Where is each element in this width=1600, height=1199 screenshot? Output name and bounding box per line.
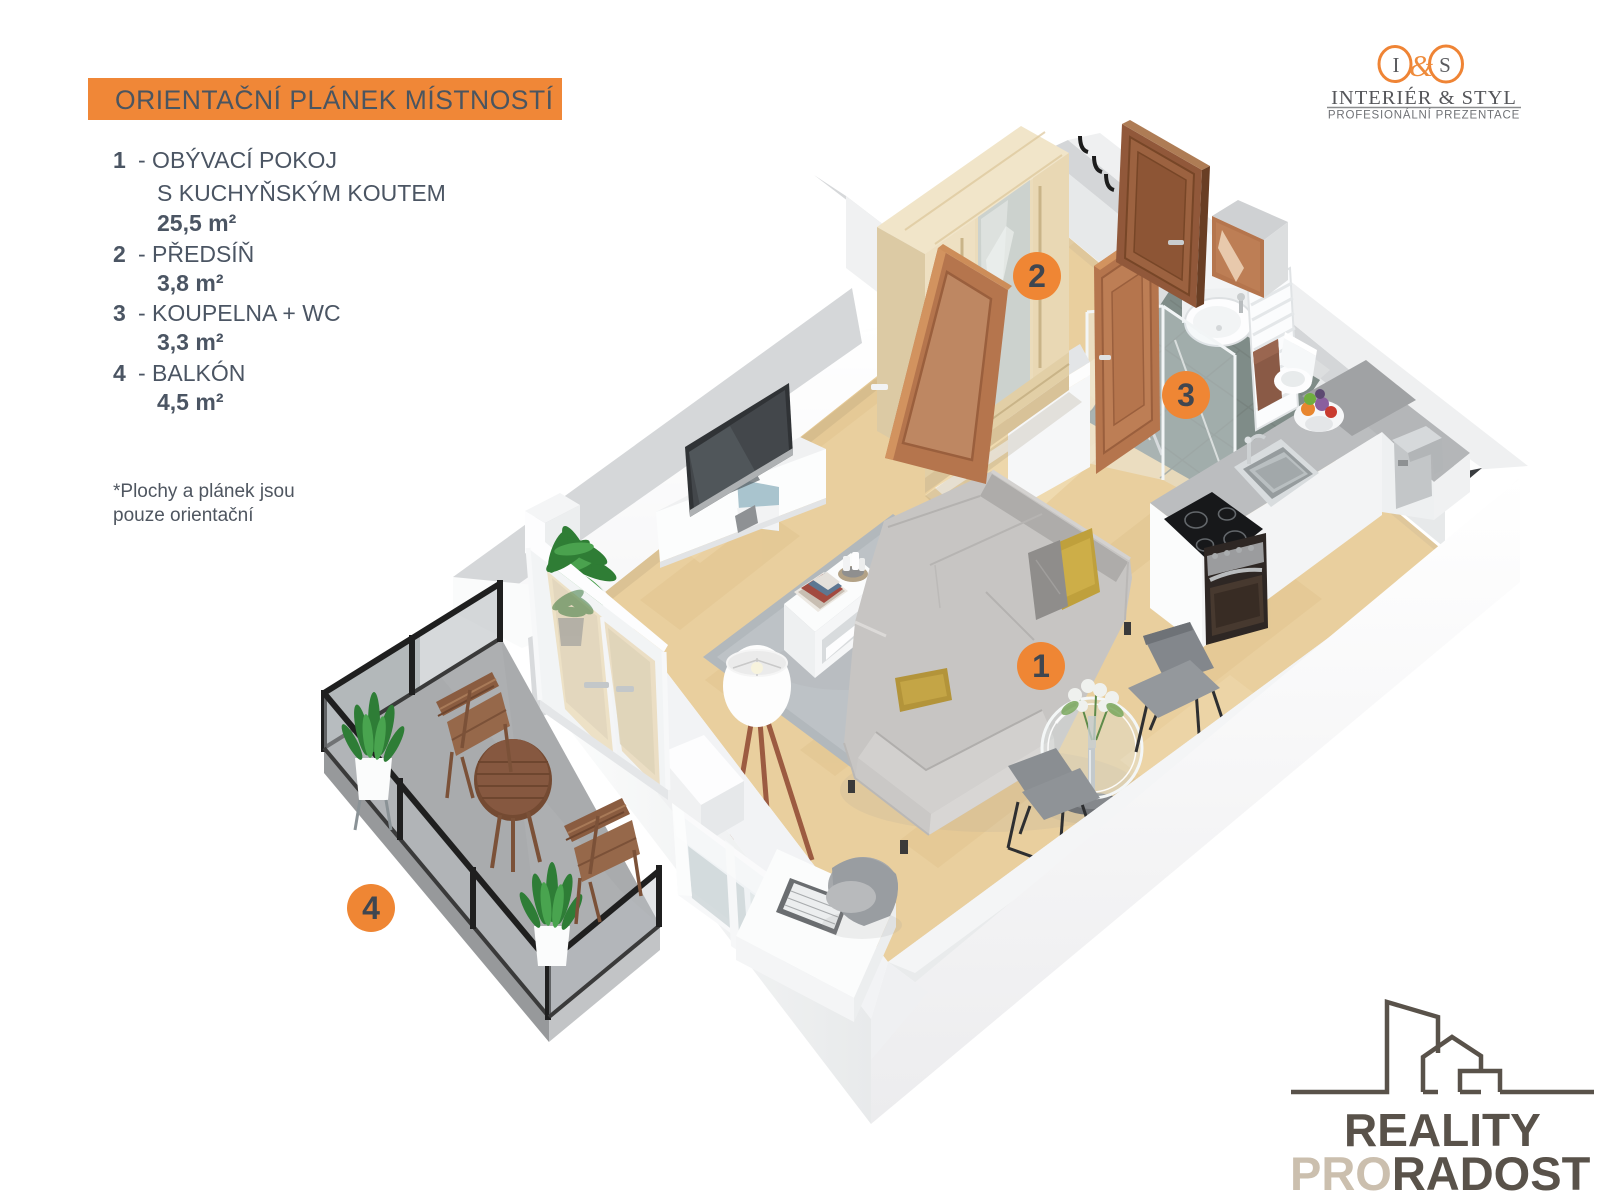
svg-text:I: I xyxy=(1393,53,1400,77)
svg-text:3: 3 xyxy=(113,300,126,326)
svg-text:pouze orientační: pouze orientační xyxy=(113,505,254,526)
svg-text:&: & xyxy=(1409,48,1433,83)
svg-text:3: 3 xyxy=(1177,377,1195,413)
svg-text:2: 2 xyxy=(1028,258,1046,294)
svg-text:3,3 m²: 3,3 m² xyxy=(157,329,224,355)
svg-text:S KUCHYŇSKÝM KOUTEM: S KUCHYŇSKÝM KOUTEM xyxy=(157,180,446,206)
svg-text:1: 1 xyxy=(113,147,126,173)
svg-text:- BALKÓN: - BALKÓN xyxy=(138,360,245,386)
svg-text:PRORADOST: PRORADOST xyxy=(1290,1147,1591,1199)
svg-text:S: S xyxy=(1439,53,1451,77)
svg-text:25,5 m²: 25,5 m² xyxy=(157,210,237,236)
svg-text:- OBÝVACÍ POKOJ: - OBÝVACÍ POKOJ xyxy=(138,147,337,173)
svg-text:2: 2 xyxy=(113,241,126,267)
svg-text:- KOUPELNA + WC: - KOUPELNA + WC xyxy=(138,300,341,326)
svg-text:4: 4 xyxy=(113,360,126,386)
svg-text:1: 1 xyxy=(1032,648,1050,684)
svg-text:3,8 m²: 3,8 m² xyxy=(157,270,224,296)
svg-text:*Plochy a plánek jsou: *Plochy a plánek jsou xyxy=(113,481,295,502)
svg-text:ORIENTAČNÍ PLÁNEK MÍSTNOSTÍ: ORIENTAČNÍ PLÁNEK MÍSTNOSTÍ xyxy=(115,85,554,115)
svg-text:4: 4 xyxy=(362,890,380,926)
svg-text:4,5 m²: 4,5 m² xyxy=(157,389,224,415)
svg-text:INTERIÉR & STYL: INTERIÉR & STYL xyxy=(1331,86,1517,109)
svg-text:- PŘEDSÍŇ: - PŘEDSÍŇ xyxy=(138,241,254,267)
svg-text:PROFESIONÁLNÍ PREZENTACE: PROFESIONÁLNÍ PREZENTACE xyxy=(1328,109,1520,122)
